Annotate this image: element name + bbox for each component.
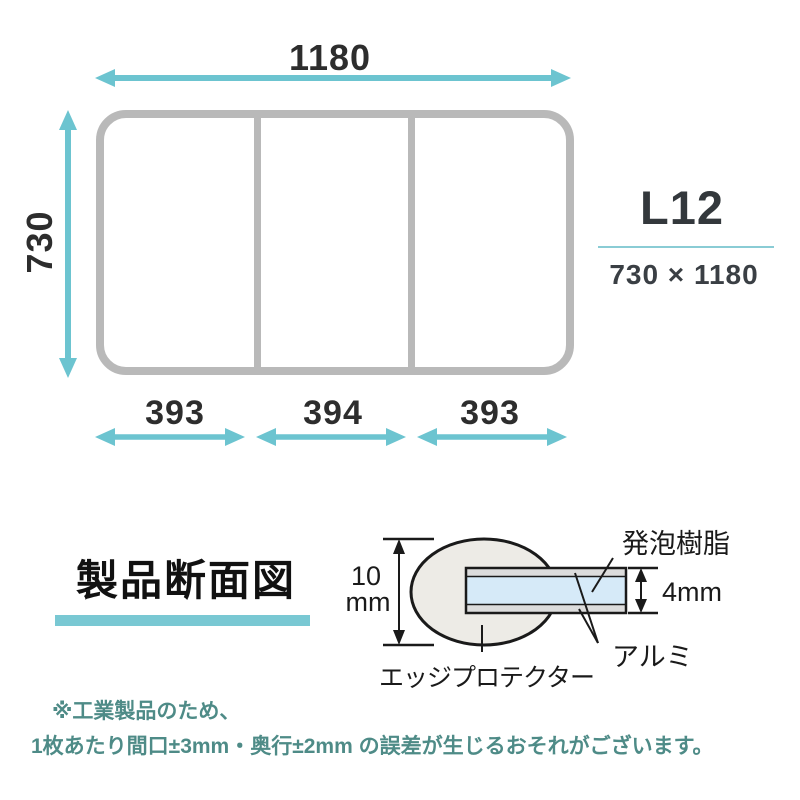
bath-lid-outline (96, 110, 574, 375)
cross-section-title: 製品断面図 (76, 560, 316, 602)
aluminum-label: アルミ (612, 642, 693, 672)
model-code: L12 (602, 184, 762, 231)
foam-label: 発泡樹脂 (622, 529, 730, 559)
panel-divider (254, 118, 261, 367)
width-dimension-label: 1180 (260, 40, 400, 76)
foam-layer (466, 576, 626, 605)
panel-width-arrows-icon (88, 425, 578, 449)
panel-divider (408, 118, 415, 367)
total-thickness-unit: mm (346, 587, 391, 617)
disclaimer-line-2: 1枚あたり間口±3mm・奥行±2mm の誤差が生じるおそれがございます。 (31, 736, 714, 757)
model-divider-rule (598, 246, 774, 248)
edge-protector-label: エッジプロテクター (379, 664, 594, 692)
title-underline-bar (55, 615, 310, 626)
model-dimensions: 730 × 1180 (592, 261, 776, 289)
board-thickness-label: 4mm (662, 577, 722, 607)
disclaimer-line-1: ※工業製品のため、 (52, 701, 240, 722)
product-dimension-sheet: 1180 730 393 394 393 L12 730 × 1180 製品断面… (0, 0, 800, 800)
cross-section-diagram: 10 mm 4mm 発泡樹脂 アルミ エッジプロテクター (330, 515, 790, 700)
board-thickness-dimension-icon (628, 568, 658, 613)
height-dimension-label: 730 (22, 192, 58, 292)
